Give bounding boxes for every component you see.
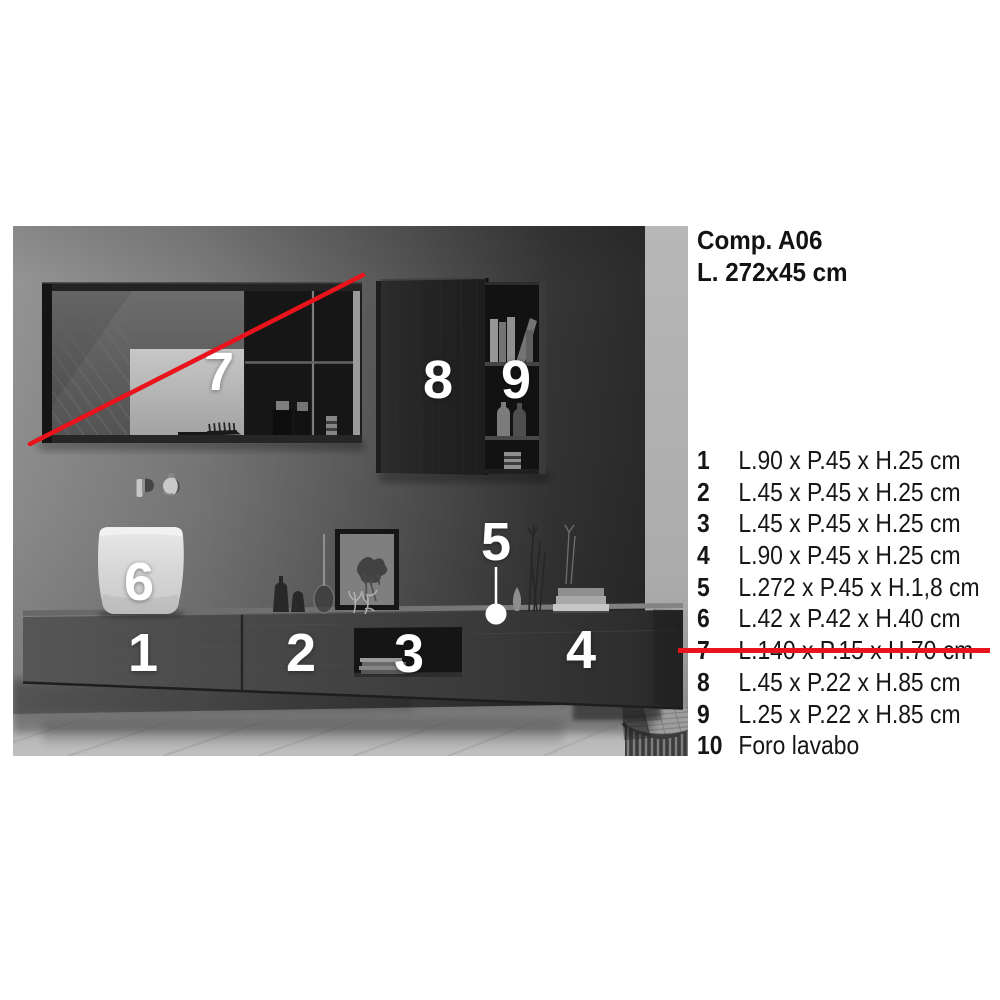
svg-text:4: 4 [566, 620, 596, 680]
svg-text:9: 9 [501, 350, 531, 410]
svg-text:8: 8 [423, 350, 453, 410]
svg-text:1: 1 [128, 623, 158, 683]
svg-text:2: 2 [286, 623, 316, 683]
svg-text:5: 5 [481, 512, 511, 572]
svg-text:3: 3 [394, 624, 424, 684]
svg-text:6: 6 [124, 552, 154, 612]
